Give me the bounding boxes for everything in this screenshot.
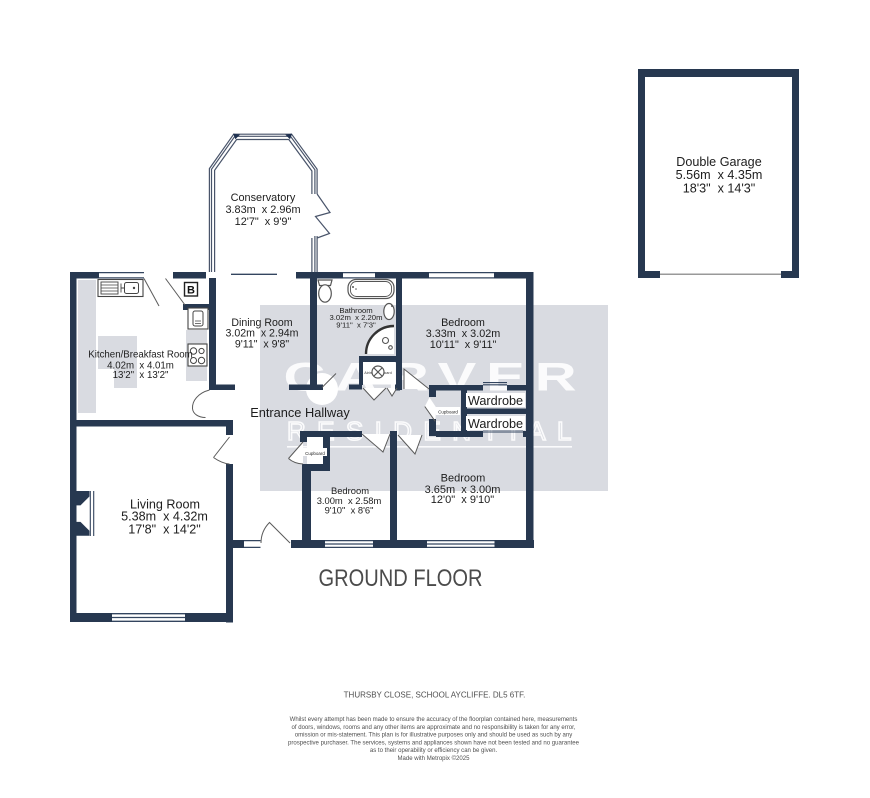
svg-text:as to their operability or eff: as to their operability or efficiency ca…: [370, 748, 498, 754]
svg-text:13'2" x 13'2": 13'2" x 13'2": [113, 370, 169, 381]
svg-text:9'11" x 7'3": 9'11" x 7'3": [336, 320, 376, 329]
svg-text:THURSBY CLOSE, SCHOOL AYCLIFFE: THURSBY CLOSE, SCHOOL AYCLIFFE. DL5 6TF.: [344, 691, 526, 700]
svg-text:12'7" x 9'9": 12'7" x 9'9": [235, 216, 292, 228]
svg-text:Wardrobe: Wardrobe: [468, 394, 523, 408]
svg-text:17'8" x 14'2": 17'8" x 14'2": [128, 523, 201, 537]
svg-text:18'3" x 14'3": 18'3" x 14'3": [683, 182, 756, 196]
svg-text:9'10" x 8'6": 9'10" x 8'6": [325, 505, 374, 516]
svg-text:Kitchen/Breakfast Room: Kitchen/Breakfast Room: [88, 350, 192, 361]
svg-text:Entrance Hallway: Entrance Hallway: [250, 405, 350, 420]
svg-text:3.83m x 2.96m: 3.83m x 2.96m: [225, 204, 300, 216]
svg-text:10'11" x 9'11": 10'11" x 9'11": [430, 339, 497, 351]
svg-text:Conservatory: Conservatory: [231, 192, 296, 204]
svg-text:Wardrobe: Wardrobe: [468, 417, 523, 431]
svg-text:Cupboard: Cupboard: [305, 451, 325, 456]
svg-text:Cupboard: Cupboard: [438, 409, 458, 414]
svg-text:Bedroom: Bedroom: [441, 473, 486, 485]
svg-text:GROUND FLOOR: GROUND FLOOR: [319, 564, 483, 591]
svg-text:B: B: [187, 285, 195, 297]
svg-text:of doors, windows, rooms and a: of doors, windows, rooms and any other i…: [291, 725, 575, 731]
svg-text:omission or mis-statement. Thi: omission or mis-statement. This plan is …: [295, 733, 573, 739]
svg-text:Double Garage: Double Garage: [676, 155, 761, 169]
svg-text:Made with Metropix ©2025: Made with Metropix ©2025: [397, 755, 470, 762]
svg-text:prospective purchaser. The ser: prospective purchaser. The services, sys…: [288, 740, 580, 746]
svg-text:9'11" x 9'8": 9'11" x 9'8": [235, 338, 290, 350]
svg-text:12'0" x 9'10": 12'0" x 9'10": [431, 494, 494, 506]
svg-text:5.56m x 4.35m: 5.56m x 4.35m: [676, 168, 763, 182]
svg-text:Whilst every attempt has been: Whilst every attempt has been made to en…: [290, 717, 578, 723]
